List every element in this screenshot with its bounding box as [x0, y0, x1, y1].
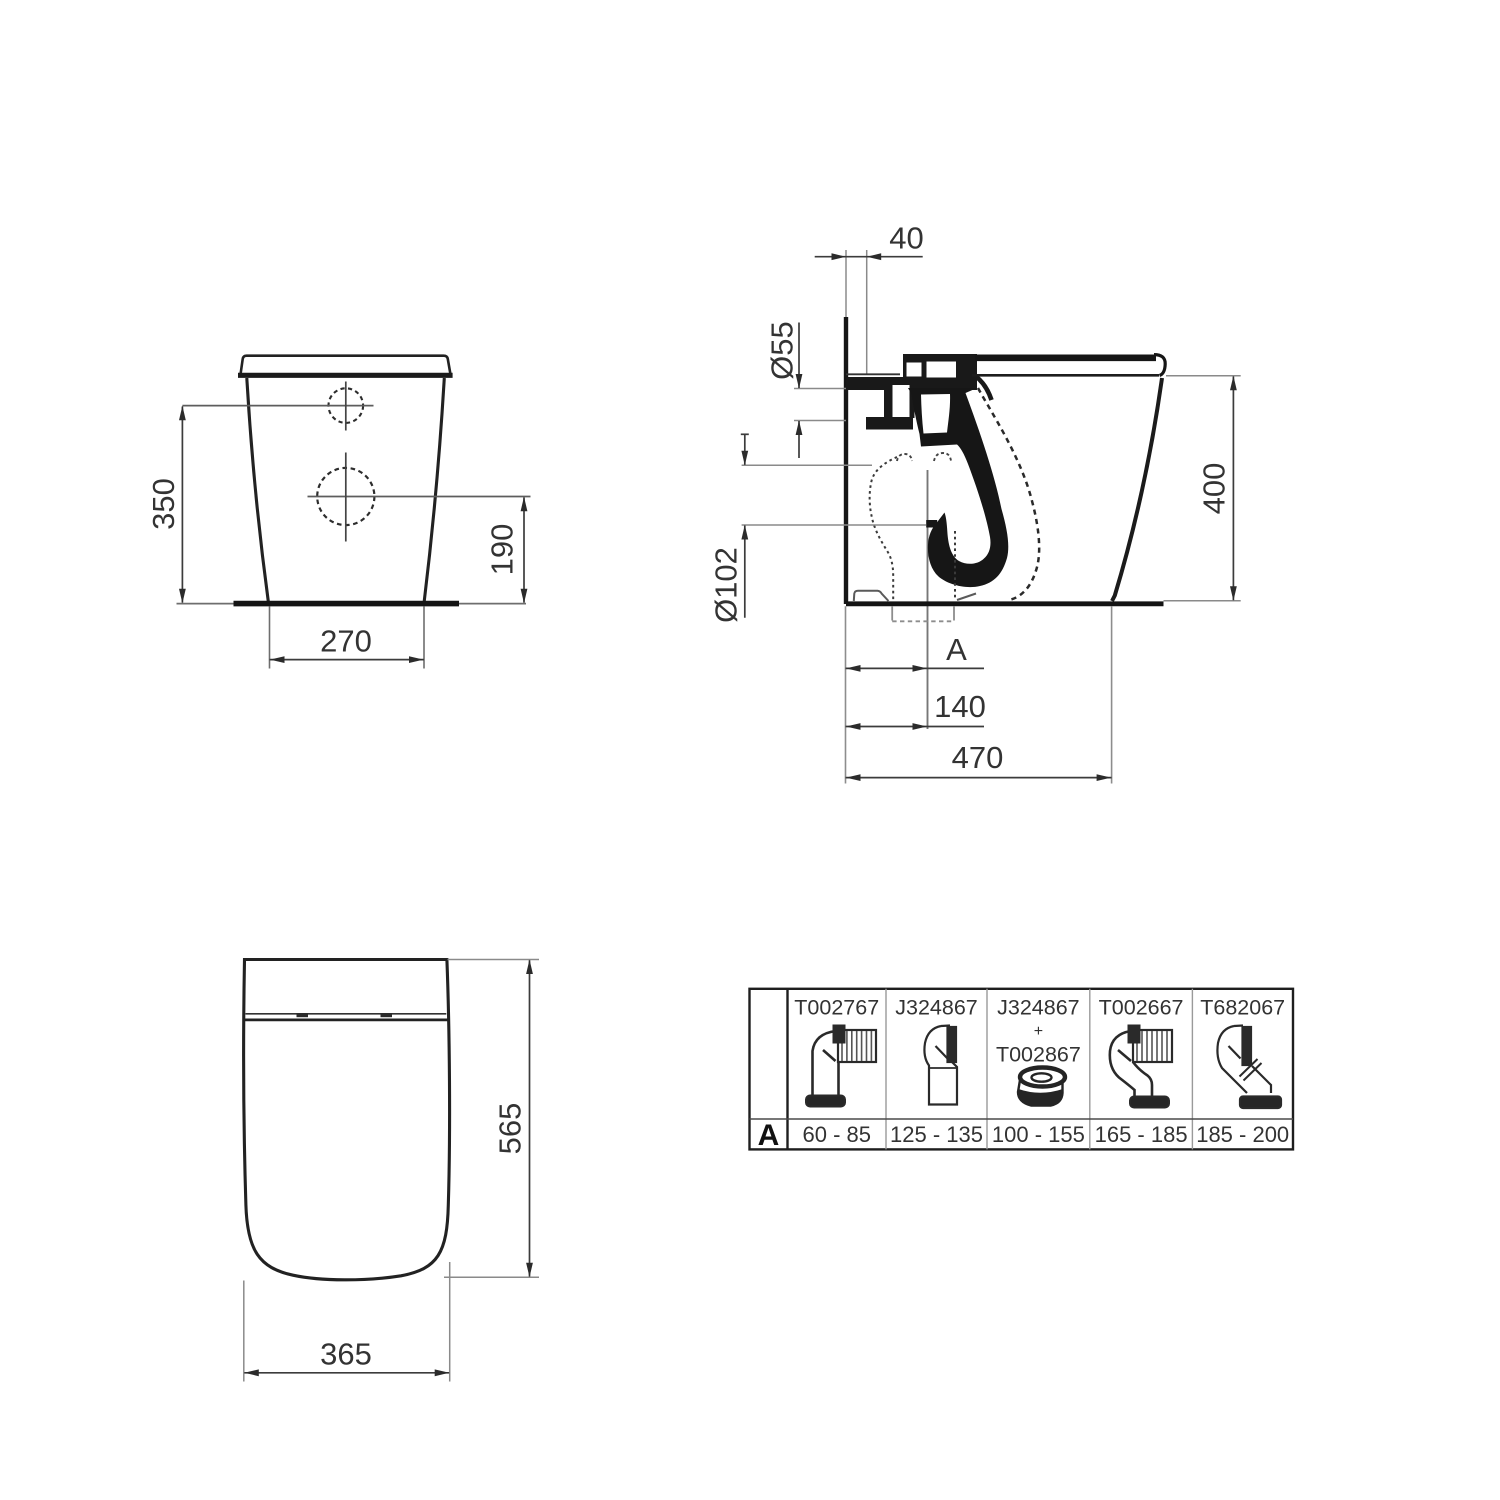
- svg-text:350: 350: [146, 478, 181, 530]
- svg-text:T002667: T002667: [1099, 996, 1184, 1020]
- svg-text:Ø102: Ø102: [709, 547, 744, 623]
- svg-text:190: 190: [485, 524, 520, 576]
- svg-text:125 - 135: 125 - 135: [890, 1122, 983, 1147]
- svg-text:A: A: [758, 1119, 780, 1152]
- svg-text:T002867: T002867: [996, 1043, 1081, 1067]
- svg-text:+: +: [1034, 1023, 1043, 1040]
- svg-text:565: 565: [493, 1103, 528, 1155]
- svg-text:J324867: J324867: [895, 996, 978, 1020]
- svg-text:T002767: T002767: [794, 996, 879, 1020]
- svg-text:100 - 155: 100 - 155: [992, 1122, 1085, 1147]
- svg-text:60 - 85: 60 - 85: [803, 1122, 872, 1147]
- svg-text:185 - 200: 185 - 200: [1196, 1122, 1289, 1147]
- svg-text:400: 400: [1197, 463, 1232, 515]
- svg-text:140: 140: [934, 689, 986, 724]
- svg-text:J324867: J324867: [997, 996, 1080, 1020]
- svg-text:40: 40: [889, 221, 923, 256]
- svg-text:270: 270: [320, 624, 372, 659]
- svg-text:365: 365: [320, 1337, 372, 1372]
- svg-text:T682067: T682067: [1200, 996, 1285, 1020]
- svg-text:165 - 185: 165 - 185: [1095, 1122, 1188, 1147]
- svg-text:Ø55: Ø55: [765, 321, 800, 380]
- svg-text:470: 470: [952, 740, 1004, 775]
- svg-text:A: A: [946, 632, 967, 667]
